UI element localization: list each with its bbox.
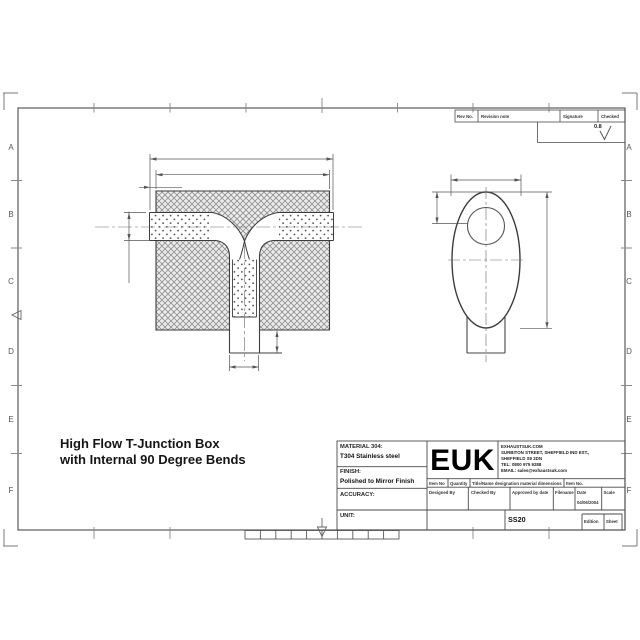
drawing-sheet: A B C D E F A B C D E F Rev No. Revision… [0, 0, 640, 640]
scale-ruler [245, 531, 399, 540]
unit-label: UNIT: [340, 513, 355, 519]
end-view-oval [432, 175, 552, 363]
left-centering-arrow [12, 311, 21, 320]
signature-header: Signature [563, 114, 583, 119]
company-logo: EUK [427, 444, 498, 478]
row-letter-right-b: B [623, 210, 635, 219]
row-letter-left-a: A [5, 143, 17, 152]
centering-marks [12, 311, 327, 537]
row-letter-right-f: F [623, 486, 635, 495]
checked-header: Checked [601, 114, 619, 119]
section-view-t-junction [95, 154, 362, 371]
revision-note-header: Revision note [481, 114, 509, 119]
drawing-title-line2: with Internal 90 Degree Bends [60, 452, 246, 468]
row-letter-left-c: C [5, 277, 17, 286]
designed-by-header: Designed By [429, 490, 455, 495]
row-letter-left-d: D [5, 347, 17, 356]
finish-label: FINISH: [340, 469, 361, 475]
address-line-5: EMAIL: sales@exhaustsuk.com [501, 468, 589, 474]
company-address: EXHAUSTSUK.COM SURBITON STREET, SHEFFIEL… [501, 444, 589, 474]
quantity-header: Quantity [450, 481, 467, 486]
item-no2-header: Item No. [566, 481, 583, 486]
filename-header: Filename [555, 490, 574, 495]
surface-finish-value: 0.8 [594, 124, 602, 130]
scale-header: Scale [604, 490, 615, 495]
row-letter-right-d: D [623, 347, 635, 356]
edition-label: Edition [584, 519, 599, 524]
sheet-label: Sheet [606, 519, 618, 524]
row-letter-right-c: C [623, 277, 635, 286]
row-letter-left-b: B [5, 210, 17, 219]
item-no-header: Item No [429, 481, 445, 486]
row-letter-left-f: F [5, 486, 17, 495]
material-label: MATERIAL 304: [340, 444, 383, 450]
material-value: T304 Stainless steel [340, 453, 400, 460]
finish-value: Polished to Mirror Finish [340, 478, 414, 485]
row-letter-right-e: E [623, 415, 635, 424]
date-value: 04/06/2004 [577, 500, 599, 505]
row-letter-left-e: E [5, 415, 17, 424]
date-header: Date [577, 490, 586, 495]
technical-drawing-canvas [0, 0, 640, 640]
accuracy-label: ACCURACY: [340, 492, 375, 498]
row-letter-right-a: A [623, 143, 635, 152]
title-name-header: Title/Name designation material dimensio… [472, 481, 562, 486]
rev-no-header: Rev No. [457, 114, 473, 119]
drawing-number: SS20 [508, 515, 526, 524]
drawing-title-line1: High Flow T-Junction Box [60, 436, 220, 452]
checked-by-header: Checked By [471, 490, 496, 495]
approved-by-header: Approved by date [512, 490, 548, 495]
